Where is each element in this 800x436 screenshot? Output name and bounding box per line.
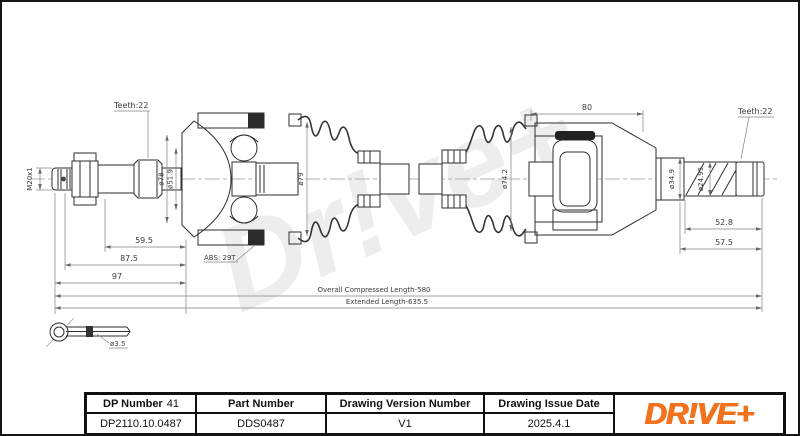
dim-label-87-5: 87.5 bbox=[120, 254, 138, 263]
part-number-value: DDS0487 bbox=[197, 414, 327, 433]
right-length-dims: 52.8 57.5 bbox=[680, 198, 762, 312]
pin-clip bbox=[86, 326, 93, 337]
dim-label-dia74-2: ø74.2 bbox=[501, 169, 509, 189]
dp-number-label: DP Number bbox=[103, 398, 163, 410]
dim-label-dia78: ø78 bbox=[158, 172, 166, 185]
dim-label-dia79: ø79 bbox=[297, 172, 305, 185]
driveplus-logo: DR!VE+ bbox=[645, 396, 754, 432]
teeth-left-label: Teeth:22 bbox=[113, 101, 148, 110]
teeth-right-callout: Teeth:22 bbox=[737, 107, 774, 159]
dp-number-value: DP2110.10.0487 bbox=[87, 414, 197, 433]
axle-drawing: Dr!ve+ M20x1 Teeth:22 ø7 bbox=[2, 2, 800, 390]
teeth-left-callout: Teeth:22 bbox=[113, 101, 150, 158]
title-block: DP Number 41 Part Number Drawing Version… bbox=[84, 392, 786, 436]
overall-length-dims: Overall Compressed Length-580 Extended L… bbox=[55, 286, 762, 308]
teeth-right-label: Teeth:22 bbox=[737, 107, 772, 116]
dim-label-dia24-95: ø24.95 bbox=[697, 167, 705, 191]
abs-ring-top bbox=[248, 113, 264, 128]
roller-cap bbox=[555, 131, 595, 140]
dim-label-57-5: 57.5 bbox=[715, 238, 733, 247]
abs-ring-bottom bbox=[248, 230, 264, 245]
issue-date-value: 2025.4.1 bbox=[485, 414, 615, 433]
overall-compressed-label: Overall Compressed Length-580 bbox=[317, 286, 430, 294]
dim-label-thread: M20x1 bbox=[26, 167, 34, 191]
threaded-stub bbox=[52, 153, 98, 205]
bell-diameter-dims: ø78 ø51.9 bbox=[158, 135, 177, 223]
drawing-version-header: Drawing Version Number bbox=[327, 395, 485, 414]
dim-label-52-8: 52.8 bbox=[715, 218, 733, 227]
part-number-header: Part Number bbox=[197, 395, 327, 414]
extended-length-label: Extended Length-635.5 bbox=[346, 298, 428, 306]
brand-logo-cell: DR!VE+ bbox=[615, 395, 783, 433]
dim-label-dia51-9: ø51.9 bbox=[167, 169, 175, 189]
drawing-version-value: V1 bbox=[327, 414, 485, 433]
ball-bearing-top bbox=[231, 135, 257, 161]
dim-label-97: 97 bbox=[112, 272, 122, 281]
ball-bearing-bottom bbox=[231, 197, 257, 223]
abs-label: ABS: 29T bbox=[204, 254, 236, 262]
cotter-pin-detail: ø3.5 bbox=[46, 318, 130, 348]
dim-label-80: 80 bbox=[582, 103, 592, 112]
issue-date-header: Drawing Issue Date bbox=[485, 395, 615, 414]
cotter-pin-hole bbox=[61, 177, 66, 182]
dp-number-header: DP Number 41 bbox=[87, 395, 197, 414]
drawing-sheet: Dr!ve+ M20x1 Teeth:22 ø7 bbox=[0, 0, 800, 436]
dim-label-59-5: 59.5 bbox=[135, 236, 153, 245]
dp-number-suffix: 41 bbox=[167, 398, 179, 410]
dim-label-pin-dia: ø3.5 bbox=[110, 340, 125, 348]
dim-label-dia34-9: ø34.9 bbox=[668, 169, 676, 189]
